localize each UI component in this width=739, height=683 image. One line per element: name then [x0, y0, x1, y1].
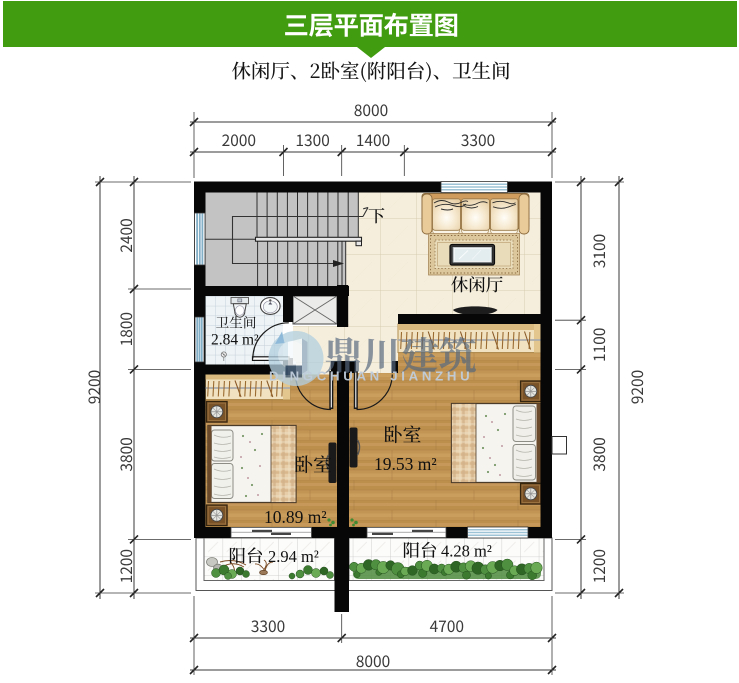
svg-text:19.53 m²: 19.53 m² — [374, 454, 437, 474]
svg-text:4.28 m²: 4.28 m² — [441, 542, 492, 561]
svg-text:DINGCHUAN JIANZHU: DINGCHUAN JIANZHU — [269, 369, 473, 384]
svg-text:2.84 m²: 2.84 m² — [211, 332, 259, 349]
svg-text:2.94 m²: 2.94 m² — [268, 547, 319, 566]
svg-text:10.89 m²: 10.89 m² — [264, 507, 327, 527]
